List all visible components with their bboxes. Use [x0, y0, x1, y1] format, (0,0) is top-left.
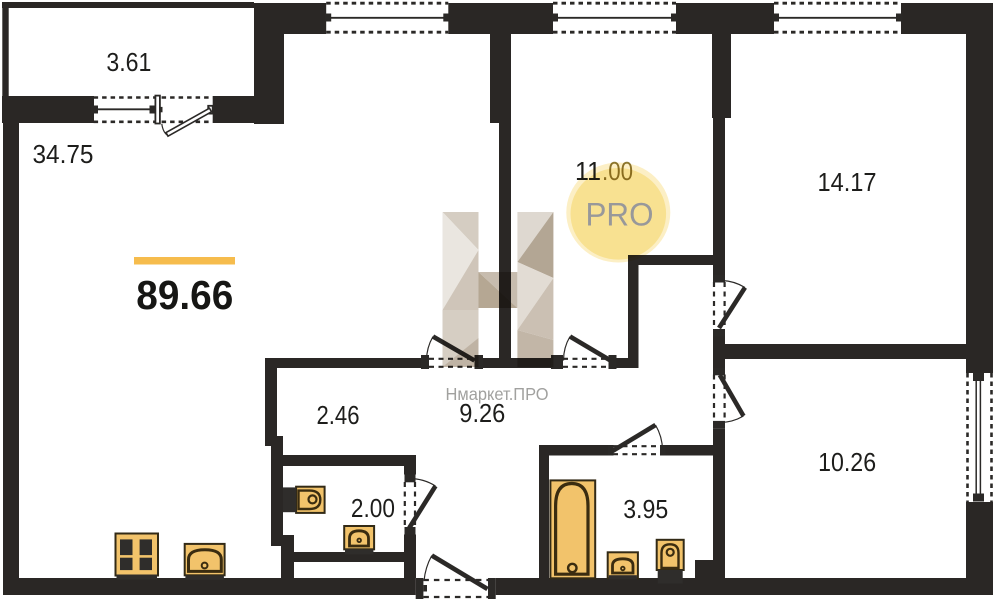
svg-text:34.75: 34.75 — [33, 139, 94, 169]
svg-text:3.61: 3.61 — [106, 47, 151, 77]
svg-text:Нмаркет.ПРО: Нмаркет.ПРО — [446, 384, 549, 404]
svg-text:3.95: 3.95 — [623, 494, 668, 524]
svg-text:10.26: 10.26 — [818, 447, 876, 477]
svg-text:2.46: 2.46 — [317, 400, 360, 430]
svg-text:89.66: 89.66 — [136, 272, 233, 318]
svg-text:14.17: 14.17 — [818, 167, 877, 197]
svg-text:2.00: 2.00 — [351, 493, 395, 523]
svg-text:PRO: PRO — [586, 197, 654, 233]
